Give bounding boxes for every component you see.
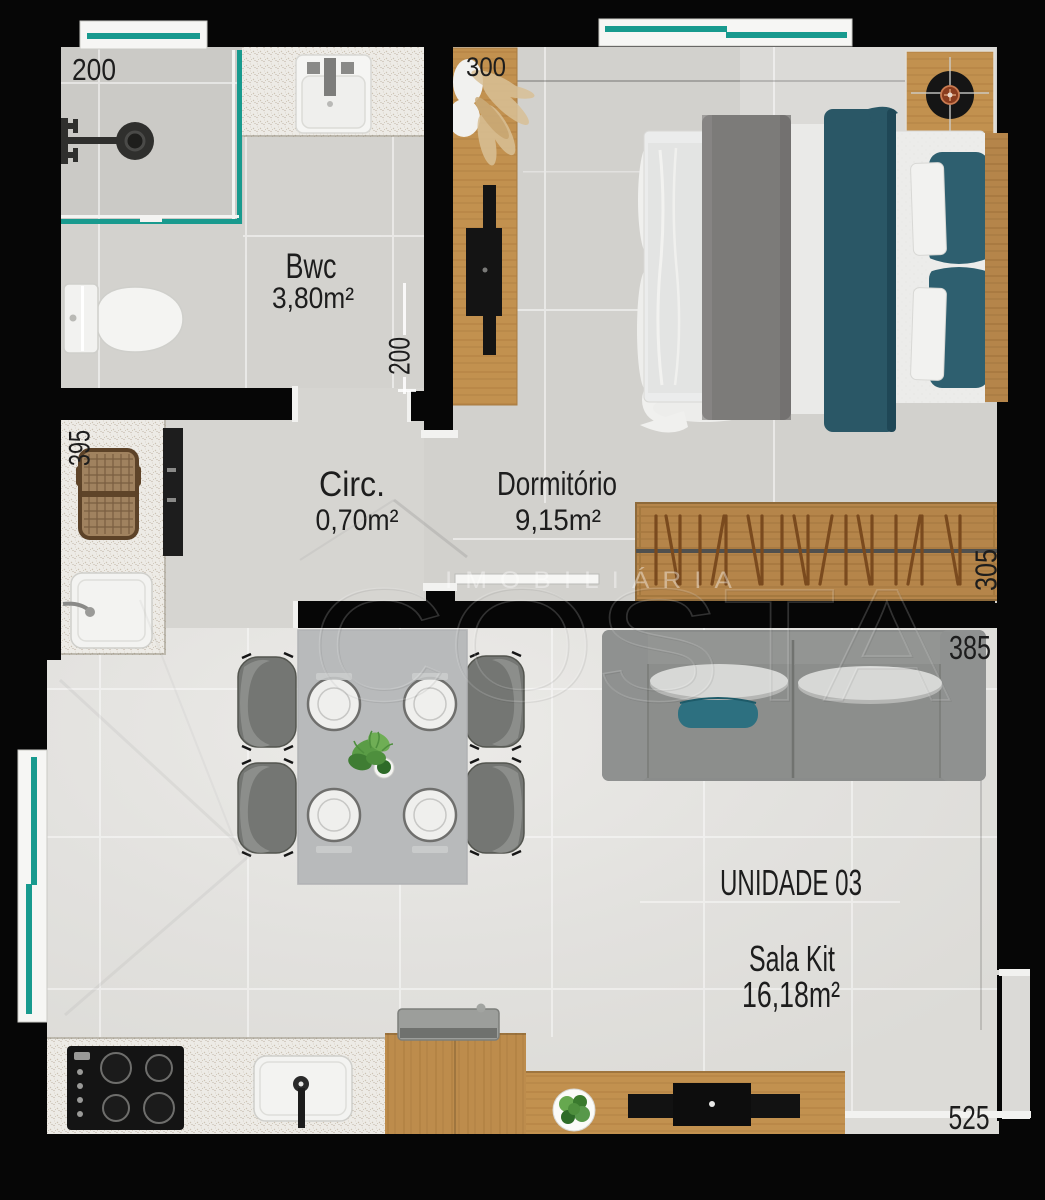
svg-text:0,70m²: 0,70m² xyxy=(316,504,399,537)
svg-text:395: 395 xyxy=(64,430,97,466)
svg-text:COSTA: COSTA xyxy=(310,555,950,734)
svg-text:305: 305 xyxy=(969,549,1004,591)
svg-text:Dormitório: Dormitório xyxy=(497,465,617,502)
svg-text:525: 525 xyxy=(949,1099,990,1136)
svg-text:3,80m²: 3,80m² xyxy=(272,282,354,315)
svg-text:Bwc: Bwc xyxy=(286,247,337,286)
svg-text:200: 200 xyxy=(384,337,417,375)
svg-text:16,18m²: 16,18m² xyxy=(742,974,840,1015)
svg-text:UNIDADE 03: UNIDADE 03 xyxy=(720,862,862,903)
svg-text:385: 385 xyxy=(949,629,991,666)
svg-text:9,15m²: 9,15m² xyxy=(515,504,601,537)
svg-text:200: 200 xyxy=(72,52,116,87)
svg-text:300: 300 xyxy=(466,52,506,82)
svg-text:Sala Kit: Sala Kit xyxy=(749,938,835,979)
svg-text:Circ.: Circ. xyxy=(319,465,385,504)
